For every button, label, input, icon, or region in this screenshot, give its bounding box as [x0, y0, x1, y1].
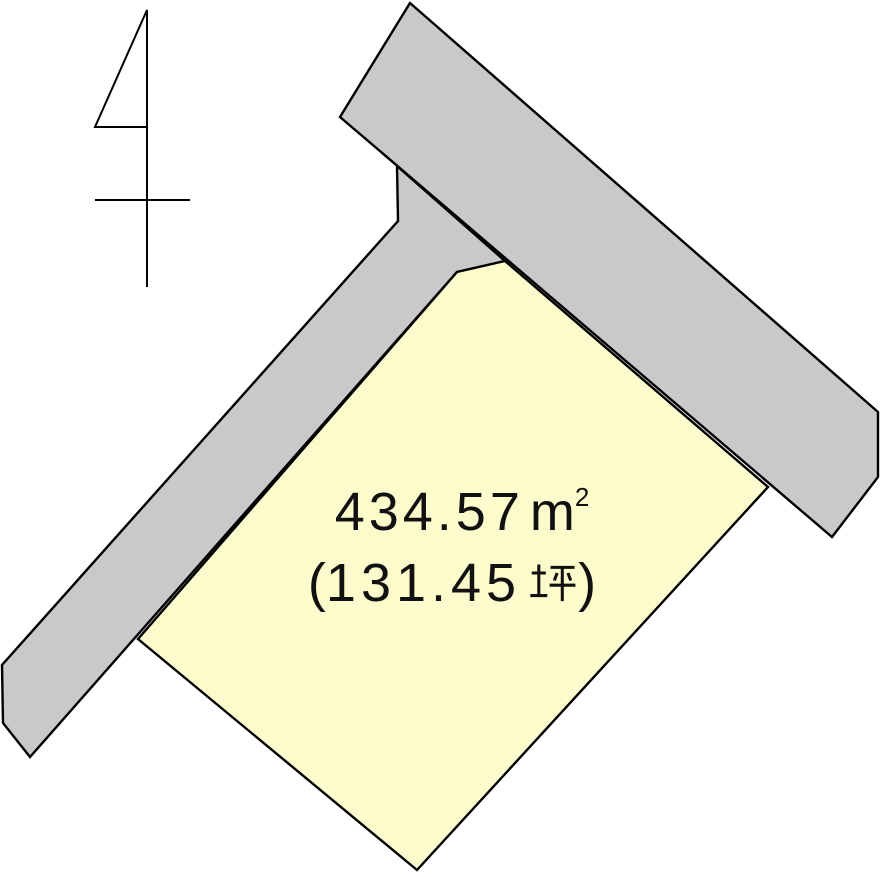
- plot-diagram: 434.57m2 (131.45 ): [0, 0, 881, 877]
- tsubo-value: 131.45: [326, 553, 521, 613]
- north-arrow-icon: [95, 10, 190, 287]
- area-label-m2: 434.57m2: [335, 484, 590, 539]
- area-unit-exponent: 2: [575, 482, 589, 512]
- plot-map-canvas: [0, 0, 881, 877]
- area-label-tsubo: (131.45 ): [308, 556, 596, 610]
- area-value: 434.57: [335, 482, 524, 542]
- tsubo-character: [529, 557, 576, 604]
- close-paren: ): [578, 553, 596, 613]
- area-unit-m: m: [530, 482, 575, 542]
- open-paren: (: [308, 553, 326, 613]
